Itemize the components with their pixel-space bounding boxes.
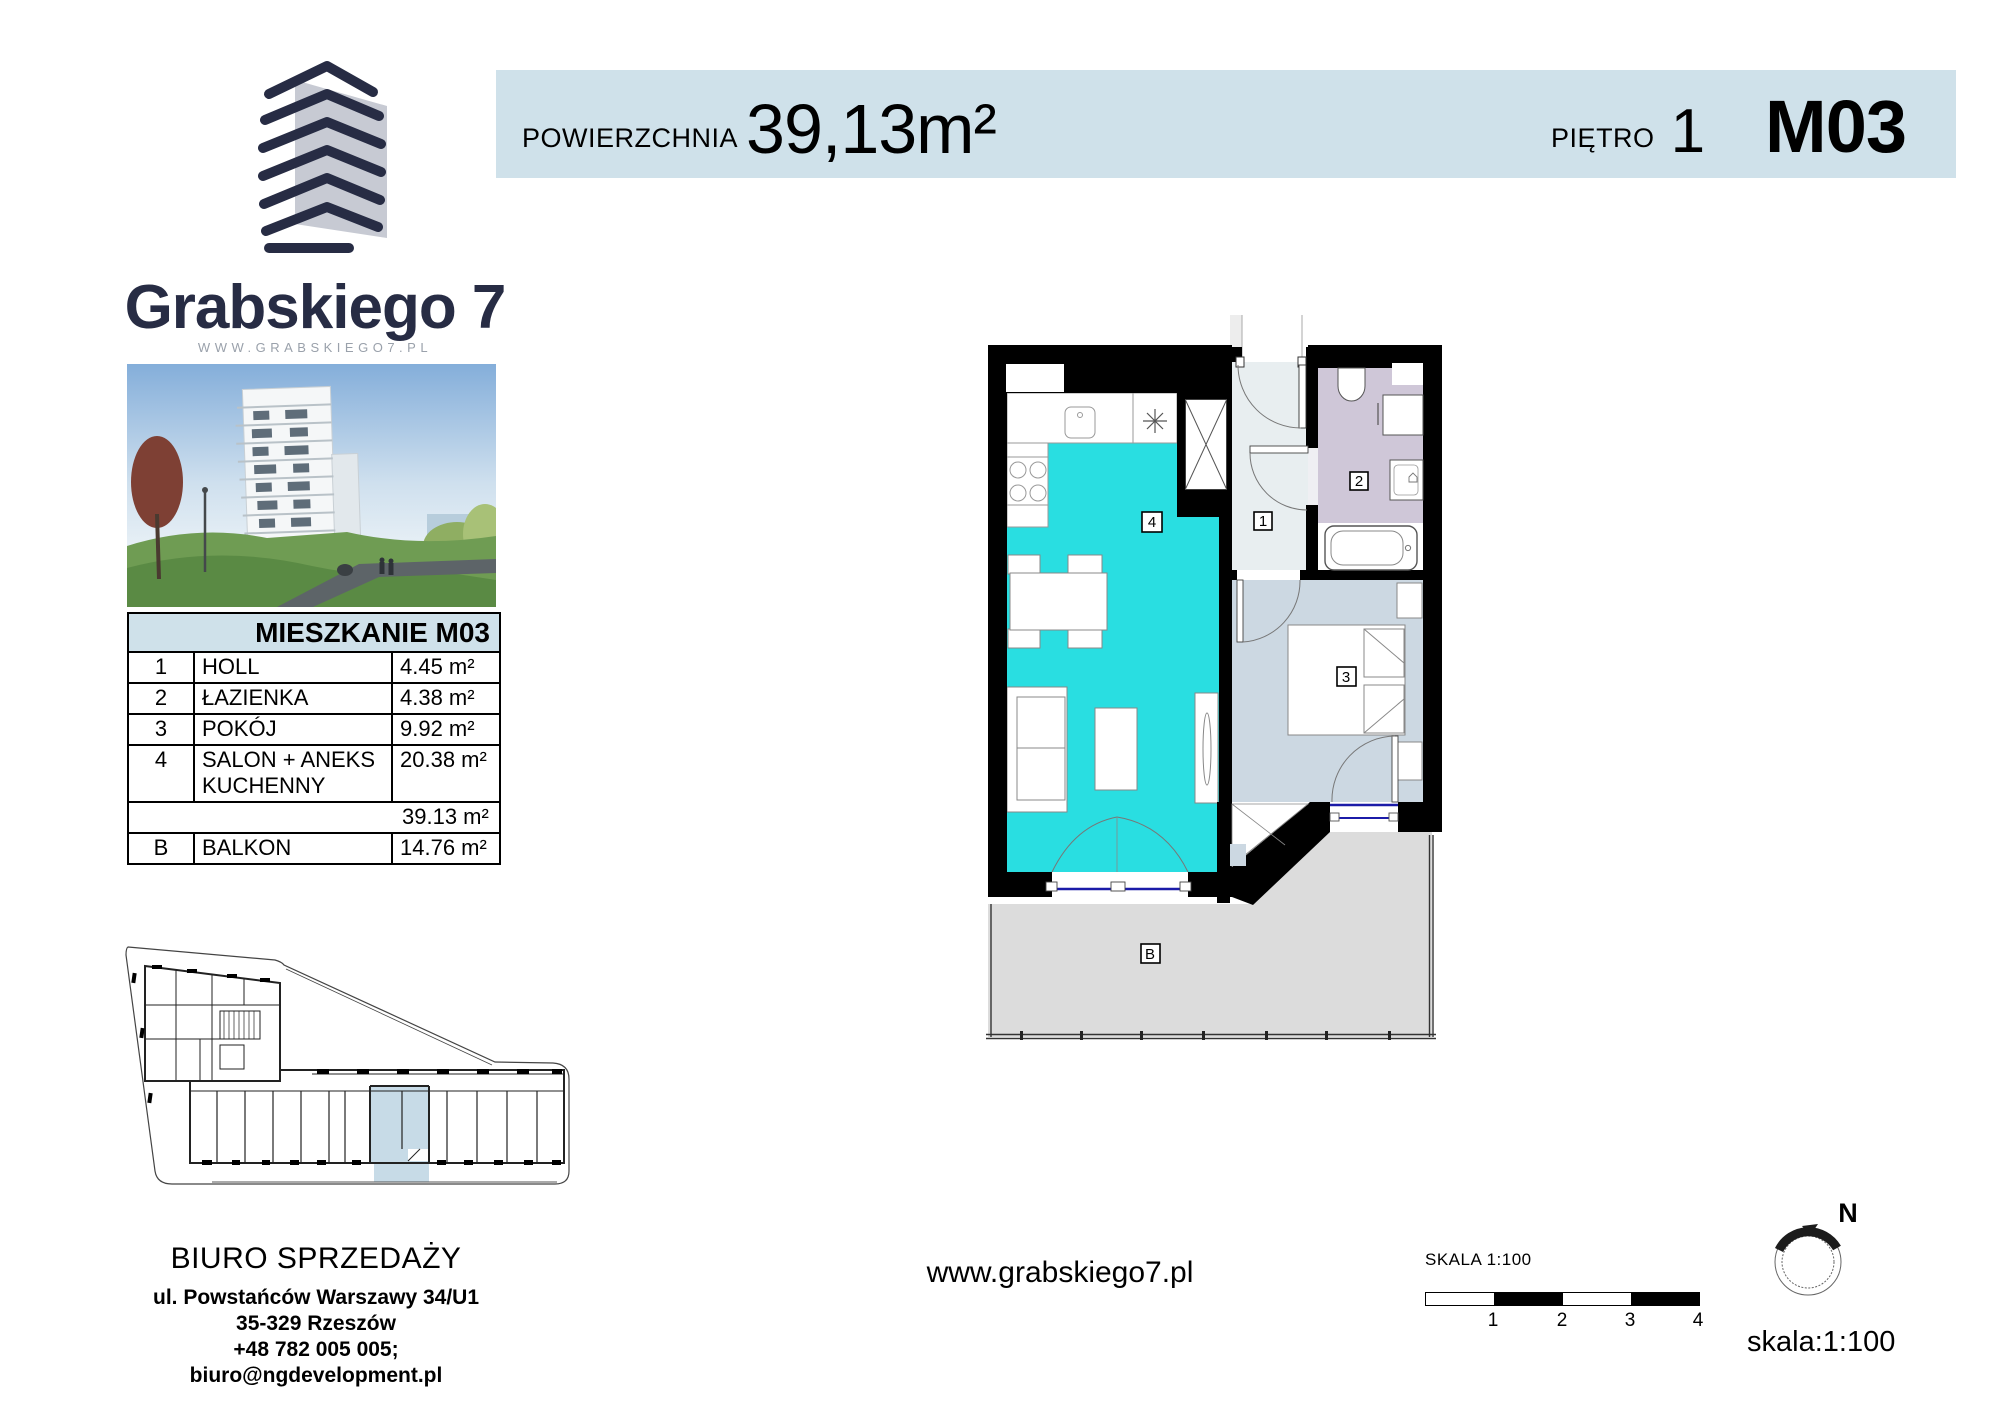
scale-block: SKALA 1:100 1 2 3 4 — [1425, 1250, 1715, 1334]
floor-label: PIĘTRO — [1551, 123, 1655, 154]
table-row: 4 SALON + ANEKS KUCHENNY 20.38 m² — [129, 746, 499, 803]
tv-unit — [1195, 693, 1218, 803]
kitchen-stove — [1007, 443, 1048, 527]
contact-phone: +48 782 005 005; — [106, 1337, 526, 1363]
sofa — [1007, 687, 1067, 812]
scale-segment — [1631, 1293, 1699, 1305]
washbasin — [1390, 460, 1423, 500]
row-name: POKÓJ — [195, 715, 393, 744]
building-logo-icon — [237, 50, 407, 260]
north-label: N — [1838, 1198, 1858, 1228]
floor-value: 1 — [1671, 103, 1705, 162]
row-name: BALKON — [195, 834, 393, 863]
row-area: 9.92 m² — [393, 715, 499, 744]
floor-plan: 4 1 2 3 B — [980, 315, 1462, 1060]
site-outline — [126, 947, 569, 1184]
row-name: ŁAZIENKA — [195, 684, 393, 713]
row-area: 4.38 m² — [393, 684, 499, 713]
row-no: 2 — [129, 684, 195, 713]
north-compass-icon: N — [1764, 1196, 1874, 1311]
living-label: 4 — [1148, 514, 1156, 531]
highlighted-unit — [370, 1086, 429, 1182]
area-label: POWIERZCHNIA — [522, 123, 738, 154]
footer-website: www.grabskiego7.pl — [880, 1256, 1240, 1290]
table-row-balcony: B BALKON 14.76 m² — [129, 834, 499, 863]
row-name: SALON + ANEKS KUCHENNY — [195, 746, 393, 801]
header-bar: POWIERZCHNIA 39,13m² PIĘTRO 1 M03 — [496, 70, 1956, 178]
table-row: 3 POKÓJ 9.92 m² — [129, 715, 499, 746]
scale-ticks: 1 2 3 4 — [1425, 1310, 1698, 1334]
scale-tick: 3 — [1625, 1310, 1636, 1332]
wall-niche — [1006, 364, 1064, 392]
coffee-table — [1095, 708, 1137, 790]
nightstand — [1397, 742, 1422, 780]
kitchen-sink — [1065, 407, 1095, 438]
scale-bar — [1425, 1292, 1700, 1306]
contact-title: BIURO SPRZEDAŻY — [106, 1242, 526, 1276]
row-no: B — [129, 834, 195, 863]
area-value: 39,13m² — [746, 96, 996, 163]
contact-email: biuro@ngdevelopment.pl — [106, 1363, 526, 1389]
table-row: 1 HOLL 4.45 m² — [129, 653, 499, 684]
table-total-row: 39.13 m² — [129, 803, 499, 834]
room-label: 3 — [1342, 669, 1350, 686]
toilet — [1338, 368, 1365, 401]
scale-tick: 4 — [1693, 1310, 1704, 1332]
corridor-outside — [1230, 315, 1242, 347]
building-photo — [127, 364, 496, 607]
row-area: 20.38 m² — [393, 746, 499, 801]
nightstand — [1397, 583, 1422, 618]
scale-segment — [1494, 1293, 1562, 1305]
contact-address-line: ul. Powstańców Warszawy 34/U1 — [106, 1285, 526, 1311]
row-area: 4.45 m² — [393, 653, 499, 682]
scale-label: SKALA 1:100 — [1425, 1250, 1715, 1270]
vestibule — [1242, 315, 1302, 362]
unit-table: MIESZKANIE M03 1 HOLL 4.45 m² 2 ŁAZIENKA… — [127, 612, 501, 865]
brand-name: Grabskiego 7 — [105, 272, 525, 343]
row-no: 1 — [129, 653, 195, 682]
row-name: HOLL — [195, 653, 393, 682]
scale-note: skala:1:100 — [1747, 1326, 1895, 1359]
scale-tick: 2 — [1557, 1310, 1568, 1332]
row-no: 3 — [129, 715, 195, 744]
ventilation-shaft — [1185, 399, 1227, 490]
wall-niche — [1392, 363, 1423, 385]
hall-area — [1232, 362, 1308, 570]
unit-code: M03 — [1765, 92, 1906, 162]
row-no: 4 — [129, 746, 195, 801]
brand-website: WWW.GRABSKIEGO7.PL — [105, 340, 525, 355]
scale-segment — [1426, 1293, 1494, 1305]
table-row: 2 ŁAZIENKA 4.38 m² — [129, 684, 499, 715]
scale-segment — [1563, 1293, 1631, 1305]
scale-tick: 1 — [1488, 1310, 1499, 1332]
bathtub — [1325, 526, 1417, 570]
contact-city-line: 35-329 Rzeszów — [106, 1311, 526, 1337]
contact-block: BIURO SPRZEDAŻY ul. Powstańców Warszawy … — [106, 1242, 526, 1389]
unit-table-title: MIESZKANIE M03 — [127, 612, 501, 653]
keyplan — [112, 933, 587, 1203]
washing-machine — [1383, 395, 1423, 435]
hall-label: 1 — [1259, 513, 1267, 530]
bathroom-label: 2 — [1355, 473, 1363, 490]
row-area: 14.76 m² — [393, 834, 499, 863]
balcony-label: B — [1145, 946, 1155, 963]
